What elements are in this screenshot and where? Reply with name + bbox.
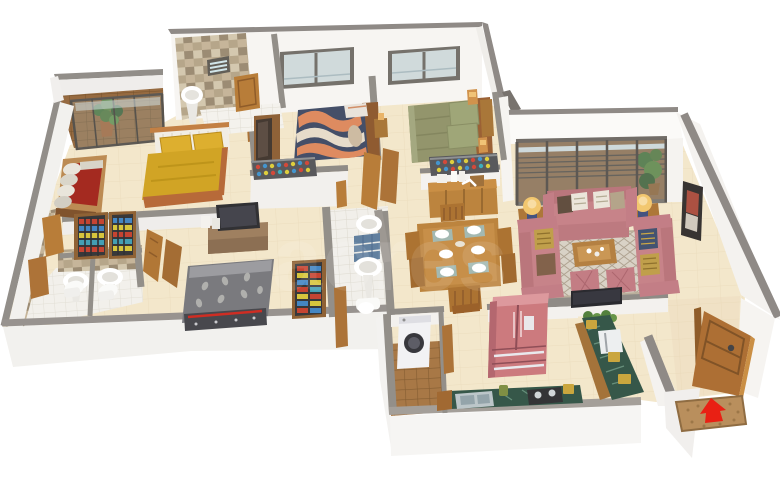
svg-text:acres: acres [272, 210, 507, 310]
